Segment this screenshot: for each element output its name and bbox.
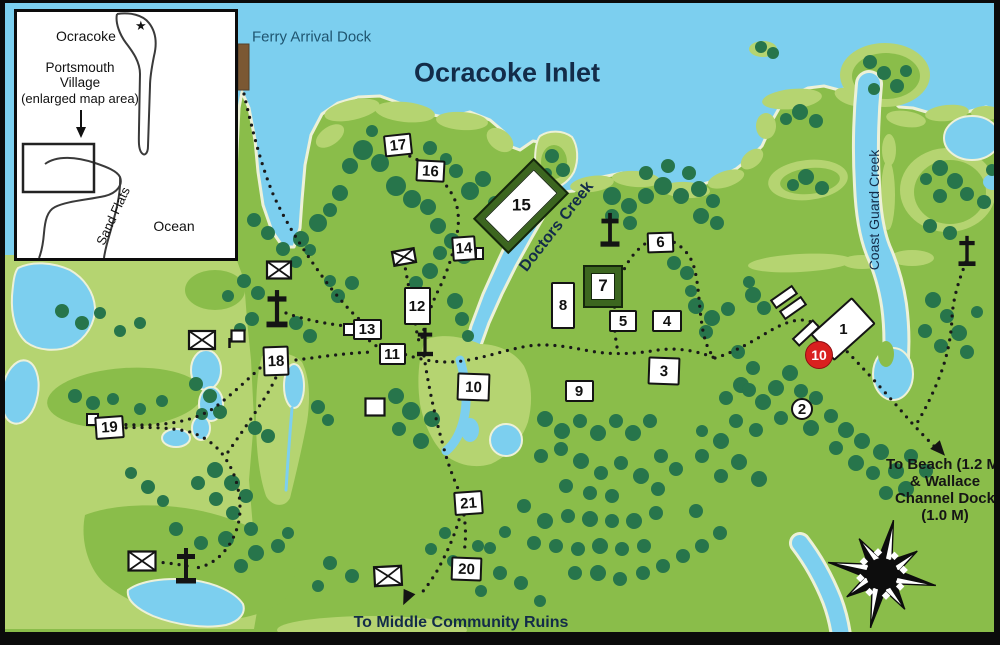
label-line: (1.0 M)	[886, 507, 994, 524]
marker-number: 13	[359, 322, 376, 337]
marker-number: 19	[100, 419, 118, 435]
map-marker-18: 18	[262, 346, 289, 377]
map-marker-19: 19	[94, 415, 125, 440]
marker-number: 10	[811, 348, 827, 362]
inset-graphics	[17, 12, 235, 258]
map-marker-12: 12	[404, 287, 431, 325]
map-canvas: 12345678910101112131415161718192021Ferry…	[5, 3, 994, 632]
marker-number: 16	[421, 163, 438, 179]
marker-number: 14	[455, 240, 473, 256]
label-to-beach-wallace-dock: To Beach (1.2 M)& WallaceChannel Dock(1.…	[886, 456, 994, 524]
marker-number: 21	[459, 495, 477, 511]
marker-number: 7	[598, 276, 607, 296]
marker-building-core: 7	[591, 273, 615, 300]
marker-number: 12	[409, 299, 426, 314]
marker-number: 1	[839, 322, 847, 337]
label-line: & Wallace	[886, 473, 994, 490]
map-marker-4: 4	[652, 310, 682, 332]
map-marker-16: 16	[415, 159, 445, 182]
inset-overview-map: ★ Ocracoke Portsmouth Village (enlarged …	[14, 9, 238, 261]
inset-label-enlarged-area: (enlarged map area)	[21, 91, 139, 106]
map-marker-8: 8	[551, 282, 575, 329]
marker-number: 5	[619, 314, 627, 329]
marker-number: 8	[559, 298, 567, 313]
ocracoke-island-outline	[117, 13, 156, 154]
map-marker-2: 2	[791, 398, 813, 420]
map-marker-13: 13	[353, 319, 382, 340]
label-line: To Beach (1.2 M)	[886, 456, 994, 473]
label-ferry-arrival-dock: Ferry Arrival Dock	[252, 29, 371, 46]
marker-number: 3	[660, 363, 669, 378]
marker-number: 18	[267, 353, 284, 369]
marker-number: 15	[512, 196, 531, 216]
marker-number: 2	[798, 402, 806, 417]
map-marker-6: 6	[646, 231, 674, 253]
label-line: Channel Dock	[886, 490, 994, 507]
inset-label-ocracoke: Ocracoke	[56, 28, 116, 44]
marker-number: 6	[656, 234, 665, 249]
portsmouth-village-trail-map: 12345678910101112131415161718192021Ferry…	[0, 0, 1000, 645]
map-marker-7: 7	[583, 265, 623, 308]
label-ocracoke-inlet: Ocracoke Inlet	[414, 58, 600, 89]
map-marker-20: 20	[450, 556, 482, 581]
inset-arrow-head	[76, 127, 86, 138]
marker-number: 4	[663, 314, 671, 329]
enlarged-area-rectangle	[23, 144, 94, 192]
inset-star-icon: ★	[135, 18, 147, 34]
stop-10-highlight-marker: 10	[805, 341, 833, 369]
label-to-middle-community-ruins: To Middle Community Ruins	[354, 614, 569, 632]
marker-number: 11	[384, 347, 400, 362]
marker-number: 20	[457, 561, 474, 577]
map-marker-9: 9	[565, 380, 594, 402]
inset-label-ocean: Ocean	[153, 218, 194, 234]
inset-label-portsmouth: Portsmouth	[45, 60, 114, 75]
marker-number: 10	[464, 379, 481, 395]
map-marker-17: 17	[383, 133, 413, 158]
map-marker-10: 10	[456, 372, 490, 401]
map-marker-3: 3	[648, 356, 681, 385]
label-coast-guard-creek: Coast Guard Creek	[866, 150, 882, 271]
map-marker-14: 14	[451, 235, 477, 262]
map-marker-21: 21	[453, 490, 484, 516]
map-marker-5: 5	[609, 310, 637, 332]
marker-number: 9	[575, 384, 583, 399]
map-marker-11: 11	[379, 343, 406, 365]
marker-number: 17	[389, 137, 407, 154]
inset-label-village: Village	[60, 75, 100, 90]
